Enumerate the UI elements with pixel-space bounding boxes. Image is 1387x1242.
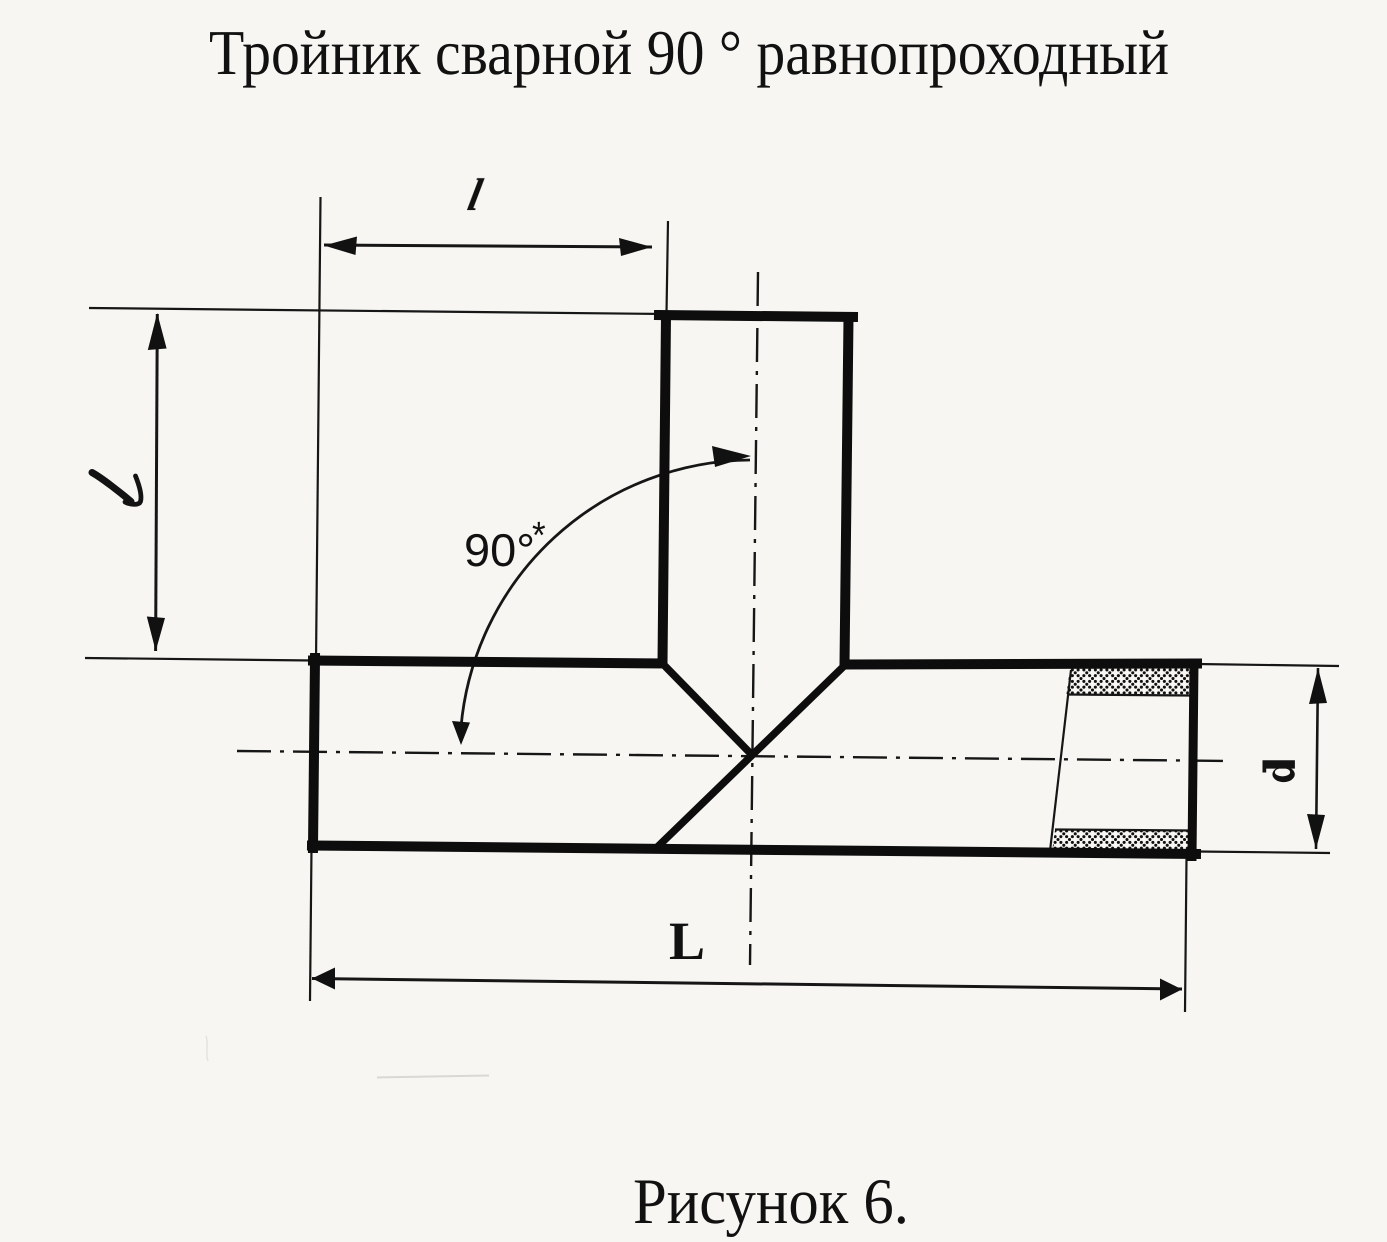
svg-text:Рисунок 6.: Рисунок 6. [633, 1166, 909, 1238]
svg-text:*: * [532, 515, 546, 557]
svg-text:90°: 90° [464, 524, 535, 576]
svg-text:Тройник сварной 90 ° равнопрох: Тройник сварной 90 ° равнопроходный [209, 17, 1169, 88]
svg-text:L: L [669, 911, 705, 971]
